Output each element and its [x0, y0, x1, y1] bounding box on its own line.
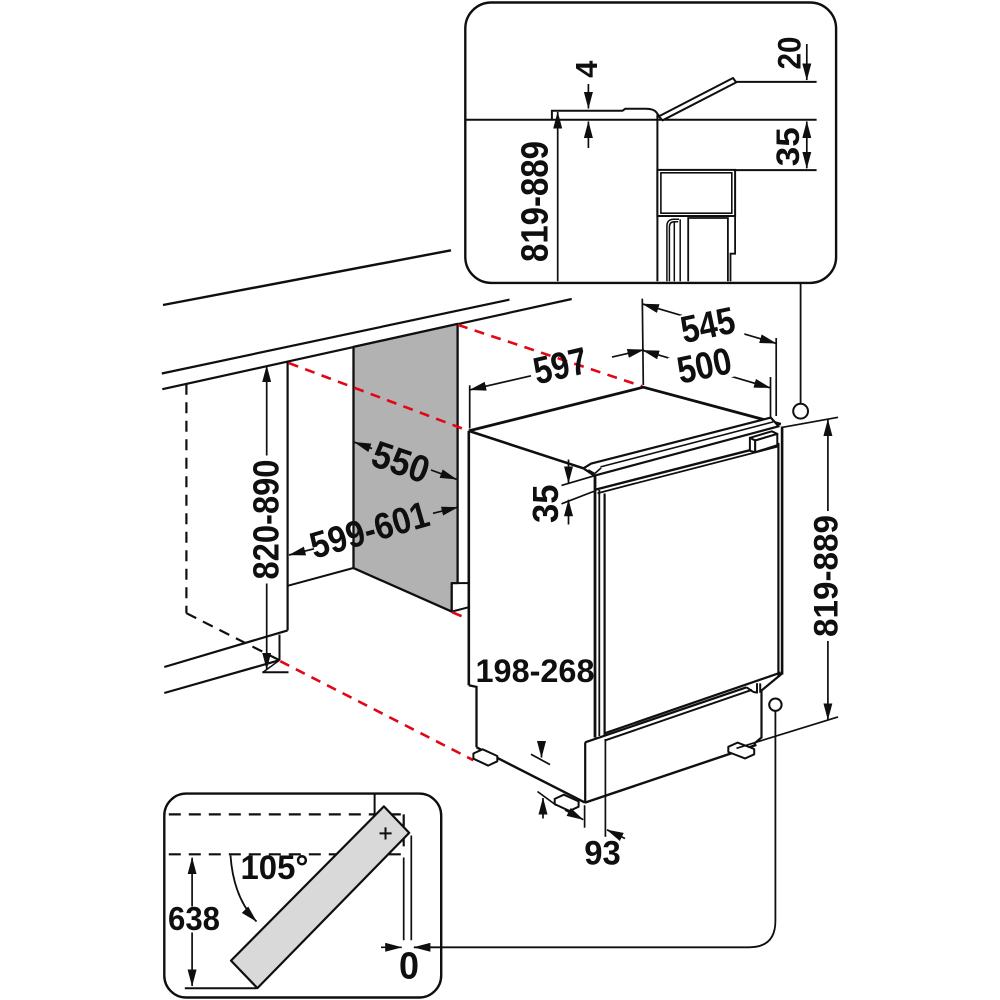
svg-text:819-889: 819-889 — [514, 141, 556, 262]
svg-text:35: 35 — [770, 127, 806, 166]
svg-text:105°: 105° — [241, 849, 309, 887]
svg-text:0: 0 — [399, 946, 419, 988]
svg-text:4: 4 — [569, 60, 604, 78]
svg-text:35: 35 — [525, 485, 566, 524]
svg-text:820-890: 820-890 — [246, 460, 287, 580]
svg-text:20: 20 — [771, 37, 807, 70]
svg-text:198-268: 198-268 — [476, 653, 595, 689]
svg-text:638: 638 — [168, 901, 220, 938]
svg-text:819-889: 819-889 — [808, 515, 846, 637]
svg-text:93: 93 — [584, 835, 621, 873]
